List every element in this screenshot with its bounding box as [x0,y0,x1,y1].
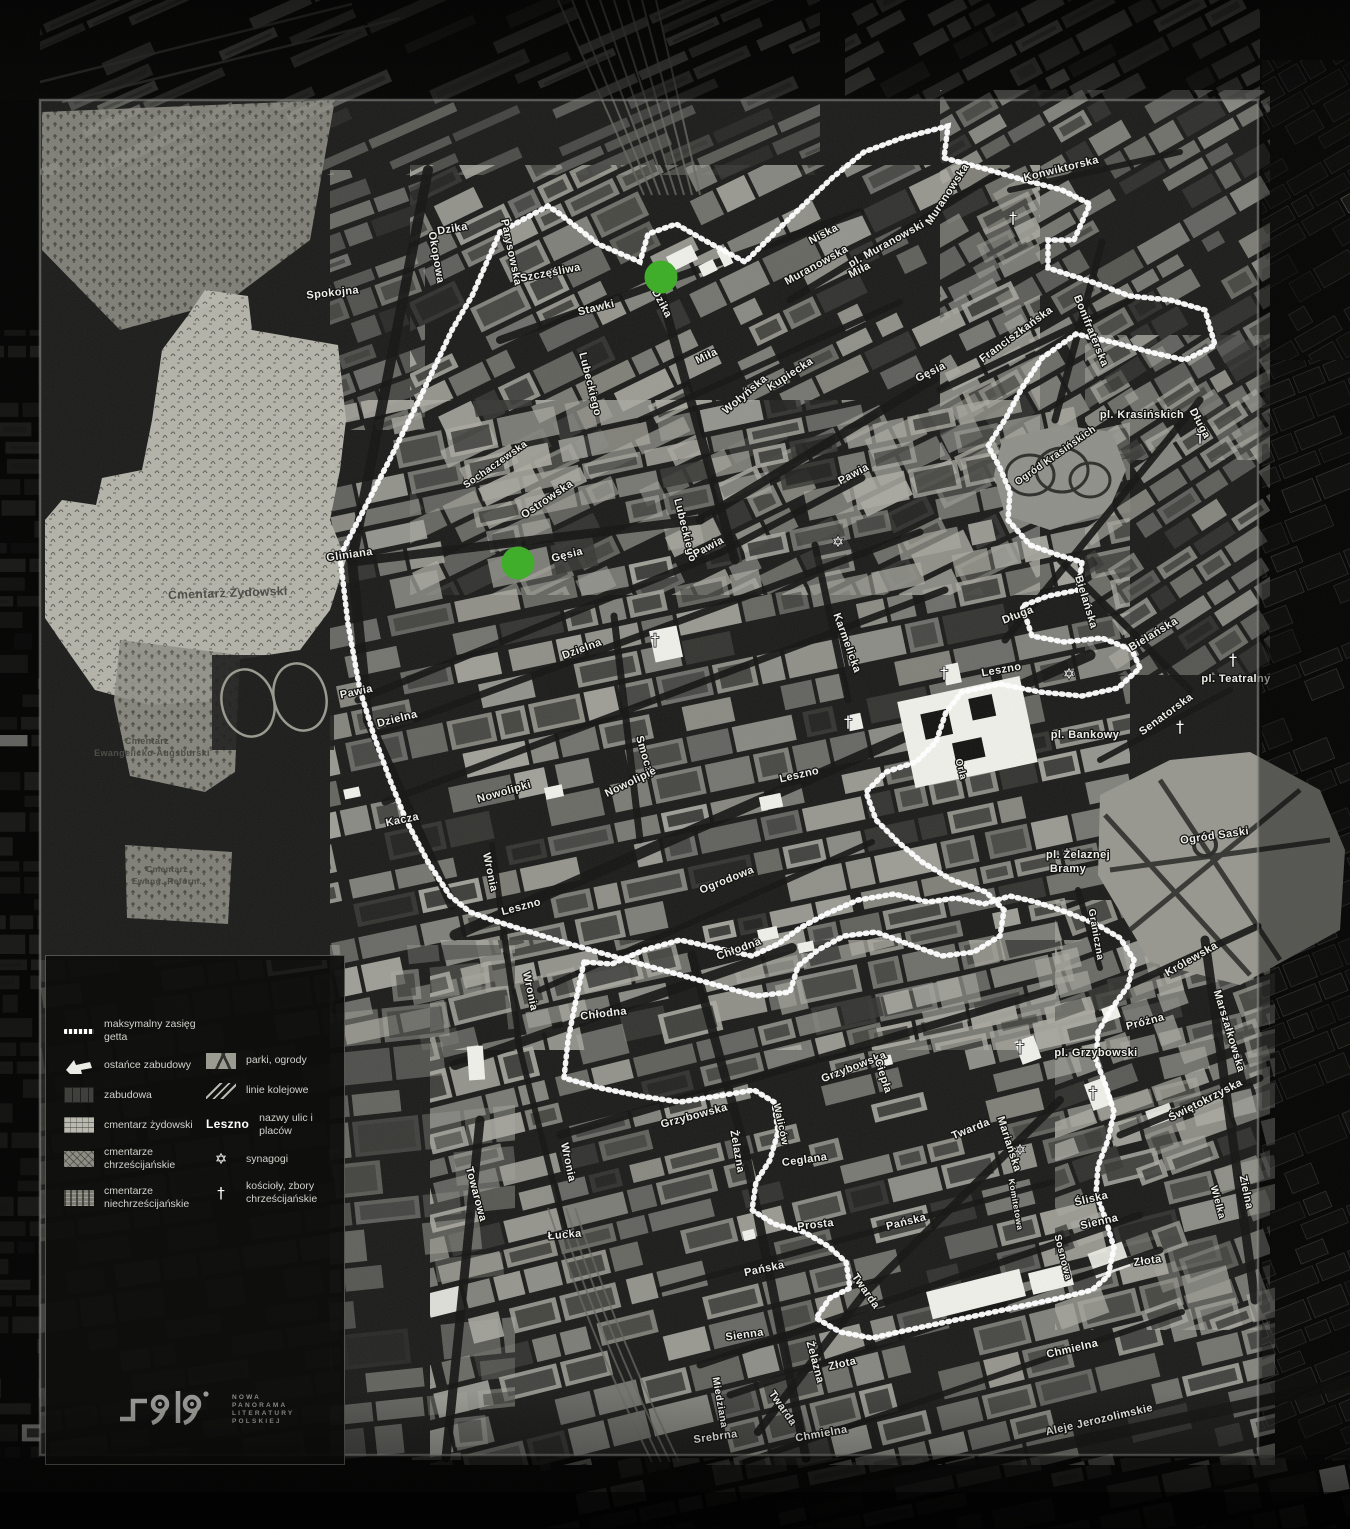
legend-item-jewish-cemetery: cmentarz żydowski [64,1116,214,1134]
legend-item-remnant-buildings: ostańce zabudowy [64,1056,214,1074]
legend-column-right: parki, ogrodylinie kolejoweLesznonazwy u… [206,1052,341,1207]
legend-item-buildings: zabudowa [64,1086,214,1104]
non-christian-cemeteries-swatch [64,1190,94,1206]
legend-label: kościoły, zbory chrześcijańskie [246,1180,341,1206]
christian-cemeteries-swatch [64,1151,94,1167]
legend-item-ghetto-extent: maksymalny zasięg getta [64,1018,214,1044]
remnant-buildings-swatch [64,1057,94,1073]
legend-item-synagogue: ✡synagogi [206,1150,341,1168]
map-stage: ✡✡✡††††††††† DzikaOkopowaSpokojnaParysow… [0,0,1350,1529]
legend-item-railways: linie kolejowe [206,1082,341,1100]
legend-label: nazwy ulic i placów [259,1112,341,1138]
buildings-swatch [64,1087,94,1103]
legend-label: cmentarz żydowski [104,1119,193,1132]
legend-item-parks: parki, ogrody [206,1052,341,1070]
ghetto-extent-swatch [64,1029,94,1034]
legend-label: zabudowa [104,1089,152,1102]
legend-label: linie kolejowe [246,1084,308,1097]
legend-label: ostańce zabudowy [104,1059,191,1072]
parks-swatch [206,1053,236,1069]
legend-label: cmentarze chrześcijańskie [104,1146,214,1172]
logo-line: POLSKIEJ [232,1418,294,1425]
jewish-cemetery-swatch [64,1117,94,1133]
legend-panel: maksymalny zasięg gettaostańce zabudowyz… [45,955,345,1465]
legend-item-street-name-sample: Lesznonazwy ulic i placów [206,1112,341,1138]
synagogue-icon: ✡ [206,1150,236,1168]
legend-label: cmentarze niechrześcijańskie [104,1185,214,1211]
legend-item-church: †kościoły, zbory chrześcijańskie [206,1180,341,1206]
legend-column-left: maksymalny zasięg gettaostańce zabudowyz… [64,1018,214,1211]
legend-item-christian-cemeteries: cmentarze chrześcijańskie [64,1146,214,1172]
railways-swatch [206,1083,236,1099]
logo-line: LITERATURY [232,1410,294,1417]
street-name-sample: Leszno [206,1117,249,1133]
legend-label: maksymalny zasięg getta [104,1018,214,1044]
nplp-logo-glyphs [118,1388,218,1430]
logo-line: PANORAMA [232,1402,294,1409]
nplp-logo-text: NOWA PANORAMA LITERATURY POLSKIEJ [232,1388,294,1425]
logo-line: NOWA [232,1394,294,1401]
church-icon: † [206,1184,236,1202]
legend-label: parki, ogrody [246,1054,307,1067]
nplp-logo[interactable]: NOWA PANORAMA LITERATURY POLSKIEJ [118,1388,294,1430]
legend-label: synagogi [246,1153,288,1166]
legend-item-non-christian-cemeteries: cmentarze niechrześcijańskie [64,1185,214,1211]
